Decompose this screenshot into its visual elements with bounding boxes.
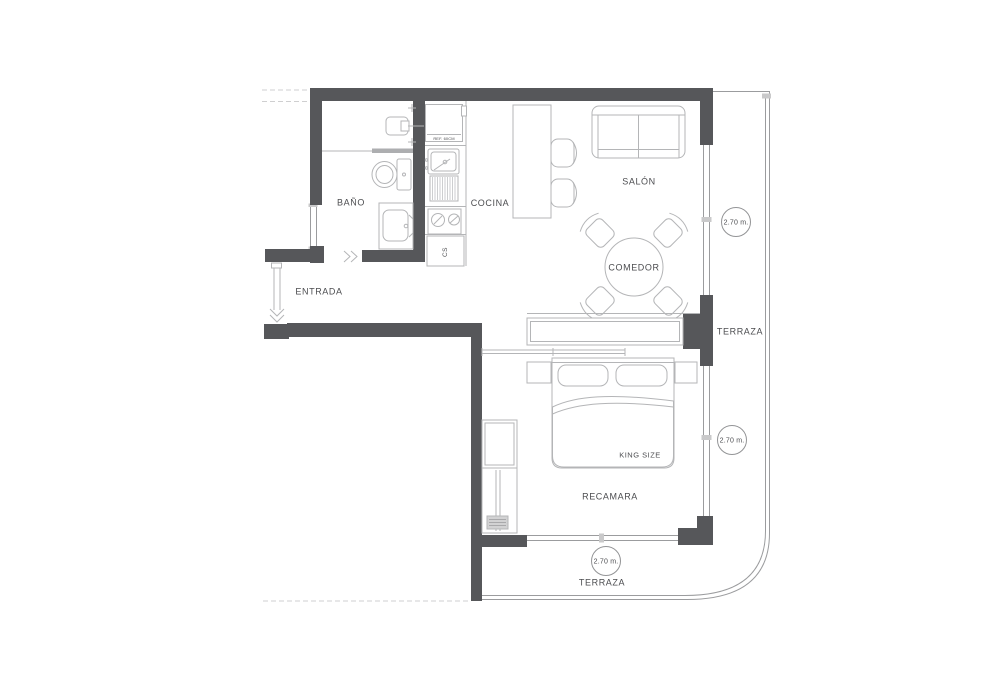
bathroom-vanity xyxy=(379,203,413,249)
bathroom-window xyxy=(309,204,318,251)
dining-chair xyxy=(578,211,618,251)
label-terraza-right: TERRAZA xyxy=(717,327,763,337)
wall-segment xyxy=(471,337,482,601)
kitchen: REF. 60CM CS xyxy=(425,101,577,266)
stove xyxy=(428,209,461,234)
wall-segment xyxy=(683,313,713,349)
svg-text:2.70 m.: 2.70 m. xyxy=(724,220,749,227)
wall-segment xyxy=(362,250,425,262)
toilet xyxy=(372,159,411,190)
wall-segment xyxy=(471,535,527,547)
wall-segment xyxy=(310,88,712,101)
label-entrada: ENTRADA xyxy=(295,287,342,297)
sliding-door-track xyxy=(482,348,625,356)
floor-plan-canvas: REF. 60CM CS xyxy=(0,0,1000,700)
bedroom-closet xyxy=(482,420,517,533)
dining-chair xyxy=(650,211,690,251)
wall-segment xyxy=(413,95,425,253)
label-terraza-bottom: TERRAZA xyxy=(579,578,625,588)
fridge-label: REF. 60CM xyxy=(433,136,454,141)
bathroom-door-marks xyxy=(344,251,357,262)
bathroom xyxy=(322,104,424,262)
living-room-window xyxy=(702,145,712,295)
entry-door xyxy=(270,263,284,322)
sofa xyxy=(592,106,685,158)
label-cocina: COCINA xyxy=(471,198,510,208)
dimension-badge: 2.70 m. xyxy=(722,208,751,237)
fridge: REF. 60CM xyxy=(426,105,467,142)
wall-segment xyxy=(265,249,312,262)
railing-corner-tick xyxy=(762,94,771,99)
bedroom-window xyxy=(702,366,712,520)
svg-text:2.70 m.: 2.70 m. xyxy=(594,559,619,566)
label-salon: SALÓN xyxy=(622,177,656,187)
kitchen-closet: CS xyxy=(427,236,464,266)
bedroom xyxy=(482,358,697,533)
label-comedor: COMEDOR xyxy=(608,263,659,273)
label-bano: BAÑO xyxy=(337,198,365,208)
bedroom-bottom-window xyxy=(527,534,683,543)
drain-rack xyxy=(430,176,458,201)
bar-stool xyxy=(551,179,577,207)
wall-segment xyxy=(310,88,322,205)
dining-chair xyxy=(578,283,618,323)
nightstand xyxy=(675,362,697,383)
kitchen-island xyxy=(513,105,551,218)
dimension-badge: 2.70 m. xyxy=(592,547,621,576)
wall-segment xyxy=(264,324,289,339)
pillow xyxy=(558,365,608,386)
shower-partition-bar xyxy=(372,149,413,154)
bar-stool xyxy=(551,139,577,167)
door-swing-arrow xyxy=(270,309,284,316)
wall-segment xyxy=(310,246,324,263)
wardrobe xyxy=(482,314,700,357)
wall-segment xyxy=(678,528,713,545)
closet-label: CS xyxy=(442,247,449,257)
floor-plan-drawing: REF. 60CM CS xyxy=(0,0,1000,700)
wall-segment xyxy=(700,88,713,145)
label-recamara: RECAMARA xyxy=(582,492,638,502)
pillow xyxy=(616,365,667,386)
wall-segment xyxy=(287,323,482,337)
nightstand xyxy=(527,362,551,383)
kitchen-sink xyxy=(425,149,459,174)
dimension-badge: 2.70 m. xyxy=(718,426,747,455)
label-king-size: KING SIZE xyxy=(619,451,661,460)
svg-text:2.70 m.: 2.70 m. xyxy=(720,438,745,445)
